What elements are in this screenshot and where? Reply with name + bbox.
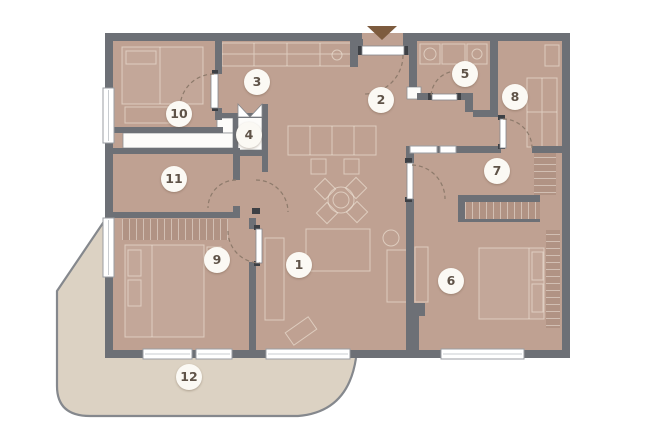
- door-hall7: [407, 163, 413, 199]
- room-label-9: 9: [204, 247, 230, 273]
- room-label-1: 1: [286, 252, 312, 278]
- door-room8: [500, 119, 506, 148]
- door-room5: [432, 94, 457, 100]
- floor-plan-canvas: [0, 0, 660, 435]
- wardrobe-hall7-right: [534, 153, 556, 195]
- room-label-7: 7: [484, 158, 510, 184]
- wardrobe-room9: [122, 219, 228, 240]
- window: [266, 349, 350, 359]
- door-room10: [211, 74, 218, 108]
- room-label-11: 11: [161, 166, 187, 192]
- interior-glass-panel: [410, 146, 437, 153]
- room-label-3: 3: [244, 69, 270, 95]
- built-in-wardrobe-strip: [123, 133, 233, 148]
- window: [103, 218, 114, 277]
- interior-glass-panel: [440, 146, 456, 153]
- wardrobe-hall7: [465, 202, 540, 222]
- floor-plan: 1 2 3 4 5 6 7 8 9 10 11 12: [0, 0, 660, 435]
- window: [196, 349, 232, 359]
- room-label-6: 6: [438, 268, 464, 294]
- window: [103, 88, 114, 143]
- door-room9: [256, 229, 262, 263]
- room-label-5: 5: [452, 61, 478, 87]
- window: [441, 349, 524, 359]
- entry-door: [362, 46, 404, 55]
- wardrobe-room6: [546, 230, 560, 328]
- room-label-12: 12: [176, 364, 202, 390]
- room-label-2: 2: [368, 87, 394, 113]
- room-label-4: 4: [236, 122, 262, 148]
- window: [143, 349, 192, 359]
- room-label-8: 8: [502, 84, 528, 110]
- room-label-10: 10: [166, 101, 192, 127]
